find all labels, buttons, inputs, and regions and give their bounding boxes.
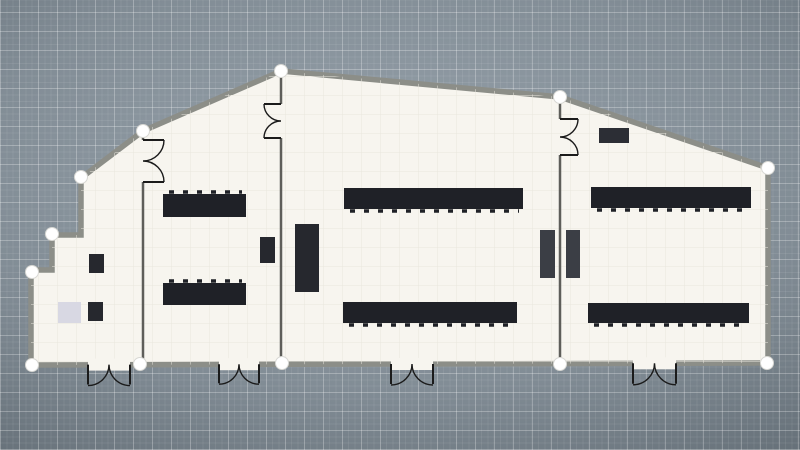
vertex-handle[interactable] bbox=[276, 357, 289, 370]
long-table[interactable] bbox=[588, 303, 749, 323]
cabinet[interactable] bbox=[260, 237, 275, 263]
floor-plan bbox=[0, 0, 800, 450]
table[interactable] bbox=[163, 194, 246, 217]
vertex-handle[interactable] bbox=[761, 357, 774, 370]
wall-unit[interactable] bbox=[566, 230, 580, 278]
vertex-handle[interactable] bbox=[554, 91, 567, 104]
floorplan-editor-canvas[interactable] bbox=[0, 0, 800, 450]
floor-mat[interactable] bbox=[58, 302, 81, 323]
vertex-handle[interactable] bbox=[26, 266, 39, 279]
vertex-handle[interactable] bbox=[75, 171, 88, 184]
vertex-handle[interactable] bbox=[26, 359, 39, 372]
long-table[interactable] bbox=[343, 302, 517, 323]
vertex-handle[interactable] bbox=[46, 228, 59, 241]
wall-unit[interactable] bbox=[540, 230, 555, 278]
vertex-handle[interactable] bbox=[137, 125, 150, 138]
long-table[interactable] bbox=[591, 187, 751, 208]
vertex-handle[interactable] bbox=[554, 358, 567, 371]
vertex-handle[interactable] bbox=[275, 65, 288, 78]
table[interactable] bbox=[163, 283, 246, 305]
long-table[interactable] bbox=[344, 188, 523, 209]
wall-board[interactable] bbox=[599, 128, 629, 143]
storage-box[interactable] bbox=[88, 302, 103, 321]
cabinet[interactable] bbox=[295, 224, 319, 292]
vertex-handle[interactable] bbox=[762, 162, 775, 175]
vertex-handle[interactable] bbox=[134, 358, 147, 371]
storage-box[interactable] bbox=[89, 254, 104, 273]
